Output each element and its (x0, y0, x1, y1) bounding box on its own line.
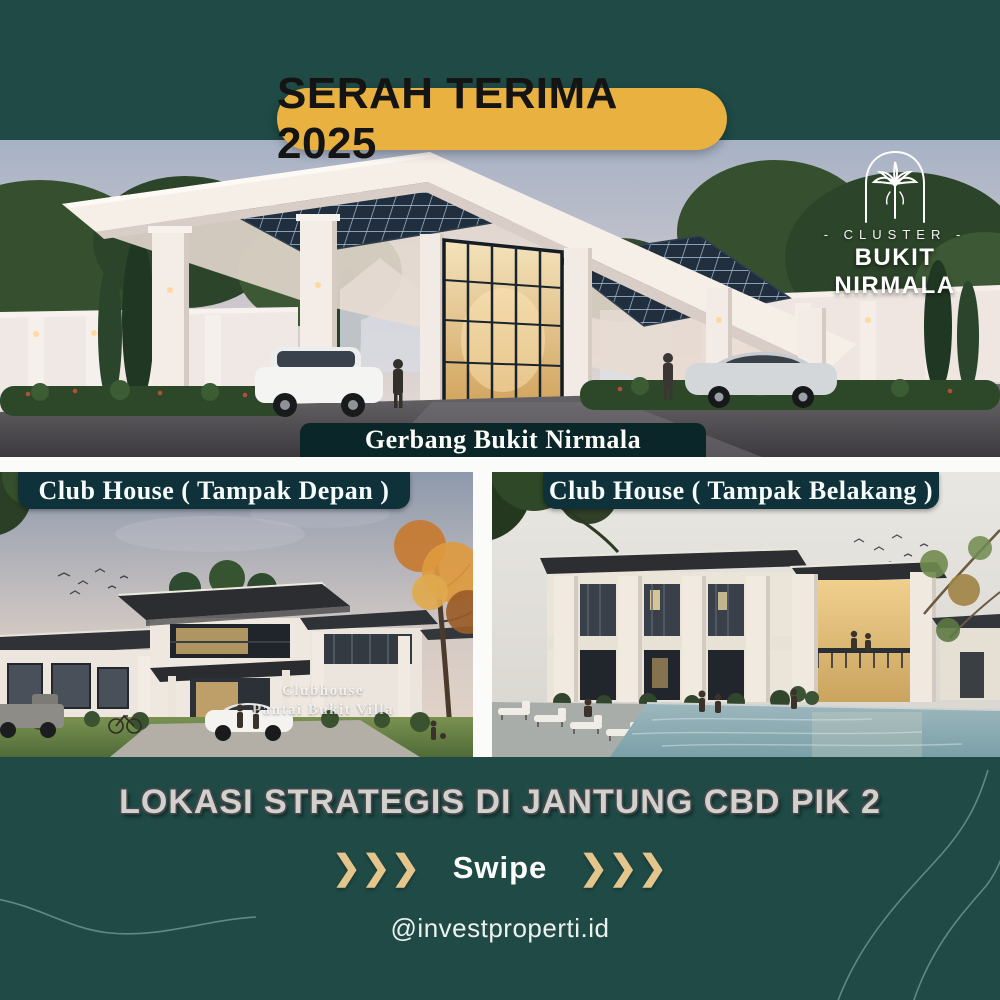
swipe-label: Swipe (453, 850, 548, 886)
clubhouse-back-label: Club House ( Tampak Belakang ) (549, 476, 933, 506)
palm-arch-icon (862, 148, 928, 224)
gate-caption: Gerbang Bukit Nirmala (365, 425, 641, 455)
gate-photo: - CLUSTER - BUKIT NIRMALA Gerbang Bukit … (0, 140, 1000, 457)
instagram-handle: @investproperti.id (0, 913, 1000, 944)
chevrons-right-icon: ❯❯❯ (579, 851, 667, 885)
chevrons-left-icon: ❯❯❯ (332, 851, 420, 885)
clubhouse-front-label: Club House ( Tampak Depan ) (39, 476, 390, 506)
swipe-indicator[interactable]: ❯❯❯ Swipe ❯❯❯ (0, 850, 1000, 886)
watermark-line1: Clubhouse (252, 682, 394, 701)
guard-house-glass (444, 240, 562, 404)
pool (610, 703, 1000, 757)
logo-name: BUKIT NIRMALA (800, 244, 990, 300)
clubhouse-back-illustration (492, 472, 1000, 757)
clubhouse-front-illustration (0, 472, 473, 757)
flyer: SERAH TERIMA 2025 (0, 0, 1000, 1000)
clubhouse-back-photo: Club House ( Tampak Belakang ) (492, 472, 1000, 757)
watermark-line2: Pantai Bukit Villa (252, 701, 394, 720)
clubhouse-watermark: Clubhouse Pantai Bukit Villa (252, 682, 394, 720)
clubhouse-front-photo: Club House ( Tampak Depan ) Clubhouse Pa… (0, 472, 473, 757)
clubhouse-photo-row: Club House ( Tampak Depan ) Clubhouse Pa… (0, 472, 1000, 757)
separator-band (0, 457, 1000, 472)
handover-badge: SERAH TERIMA 2025 (277, 88, 727, 150)
clubhouse-back-label-bar: Club House ( Tampak Belakang ) (543, 472, 939, 509)
logo-cluster-label: - CLUSTER - (800, 227, 990, 242)
cluster-logo: - CLUSTER - BUKIT NIRMALA (800, 148, 990, 300)
handover-badge-label: SERAH TERIMA 2025 (277, 69, 727, 169)
headline: LOKASI STRATEGIS DI JANTUNG CBD PIK 2 (0, 783, 1000, 822)
clubhouse-front-label-bar: Club House ( Tampak Depan ) (18, 472, 410, 509)
gate-caption-bar: Gerbang Bukit Nirmala (300, 423, 706, 457)
